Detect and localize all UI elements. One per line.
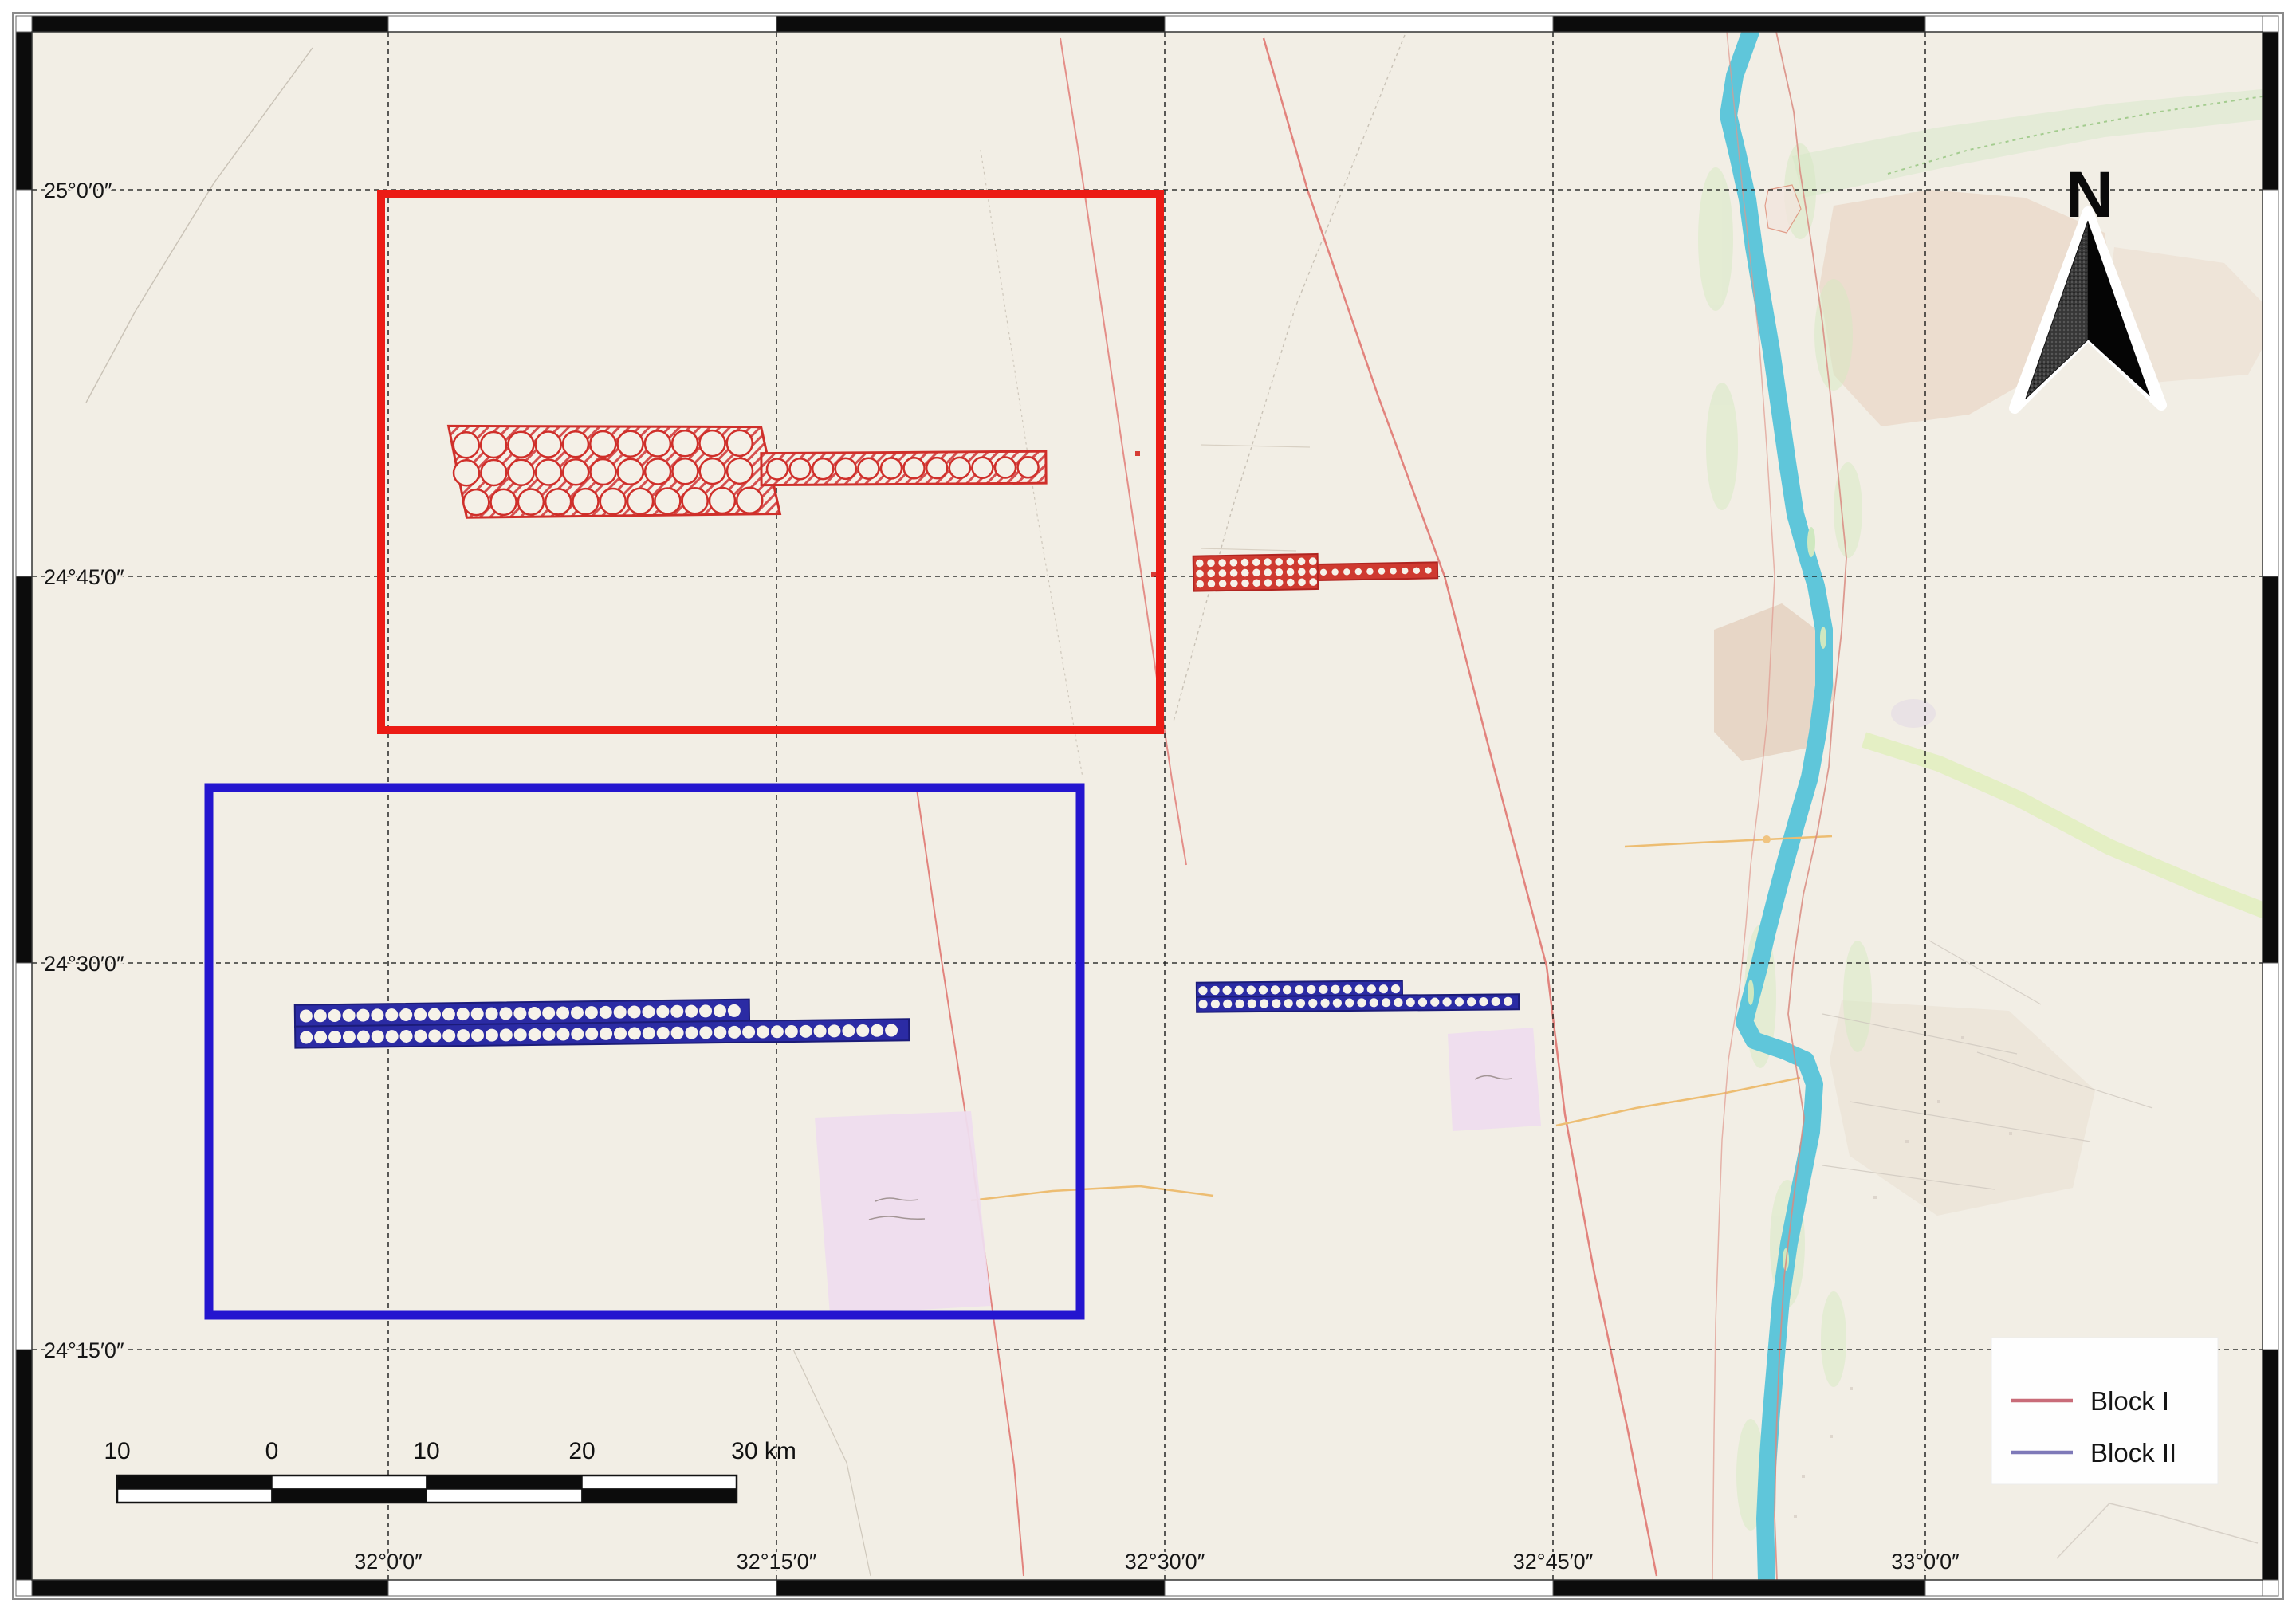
zebra-segment — [16, 1350, 32, 1580]
legend: Block I Block II — [1991, 1338, 2218, 1484]
legend-label-block-ii: Block II — [2090, 1438, 2176, 1468]
zebra-segment — [1925, 16, 2263, 32]
zebra-segment — [32, 1580, 388, 1596]
zebra-segment — [2263, 1350, 2278, 1580]
zebra-segment — [16, 576, 32, 963]
scale-label-20: 20 — [568, 1438, 595, 1464]
zebra-segment — [776, 1580, 1165, 1596]
zebra-segment — [776, 16, 1165, 32]
zebra-segment — [16, 190, 32, 576]
scale-label-0: 0 — [265, 1438, 279, 1464]
urban-area-east — [1448, 1028, 1541, 1131]
scale-label-30km: 30 km — [731, 1438, 796, 1464]
lon-label-32-45: 32°45′0″ — [1513, 1550, 1594, 1574]
zebra-segment — [1165, 16, 1553, 32]
zebra-corner-square — [2263, 16, 2278, 32]
zebra-segment — [1553, 1580, 1925, 1596]
zebra-segment — [1553, 16, 1925, 32]
zebra-segment — [2263, 576, 2278, 963]
lon-label-32-0: 32°0′0″ — [354, 1550, 423, 1574]
urban-speckle — [1891, 699, 1936, 728]
zebra-corner-square — [2263, 1580, 2278, 1596]
lon-label-32-30: 32°30′0″ — [1125, 1550, 1205, 1574]
lat-label-24-30: 24°30′0″ — [44, 952, 124, 976]
zebra-segment — [16, 963, 32, 1350]
map-svg: 25°0′0″ 24°45′0″ 24°30′0″ 24°15′0″ 32°0′… — [0, 0, 2296, 1615]
scale-label-10-left: 10 — [104, 1438, 130, 1464]
zebra-segment — [16, 32, 32, 190]
scale-label-10-right: 10 — [413, 1438, 439, 1464]
urban-area-in-block-ii — [815, 1111, 991, 1314]
legend-label-block-i: Block I — [2090, 1386, 2169, 1416]
zebra-segment — [1165, 1580, 1553, 1596]
lat-label-25-0: 25°0′0″ — [44, 179, 112, 202]
zebra-segment — [388, 1580, 776, 1596]
lon-label-33-0: 33°0′0″ — [1891, 1550, 1960, 1574]
lat-label-24-45: 24°45′0″ — [44, 565, 124, 589]
lat-label-24-15: 24°15′0″ — [44, 1338, 124, 1362]
lon-label-32-15: 32°15′0″ — [737, 1550, 817, 1574]
zebra-segment — [388, 16, 776, 32]
zebra-segment — [32, 16, 388, 32]
zebra-corner-square — [16, 1580, 32, 1596]
zebra-segment — [1925, 1580, 2263, 1596]
zebra-segment — [2263, 963, 2278, 1350]
map-figure: 25°0′0″ 24°45′0″ 24°30′0″ 24°15′0″ 32°0′… — [0, 0, 2296, 1615]
zebra-corner-square — [16, 16, 32, 32]
zebra-segment — [2263, 190, 2278, 576]
zebra-segment — [2263, 32, 2278, 190]
